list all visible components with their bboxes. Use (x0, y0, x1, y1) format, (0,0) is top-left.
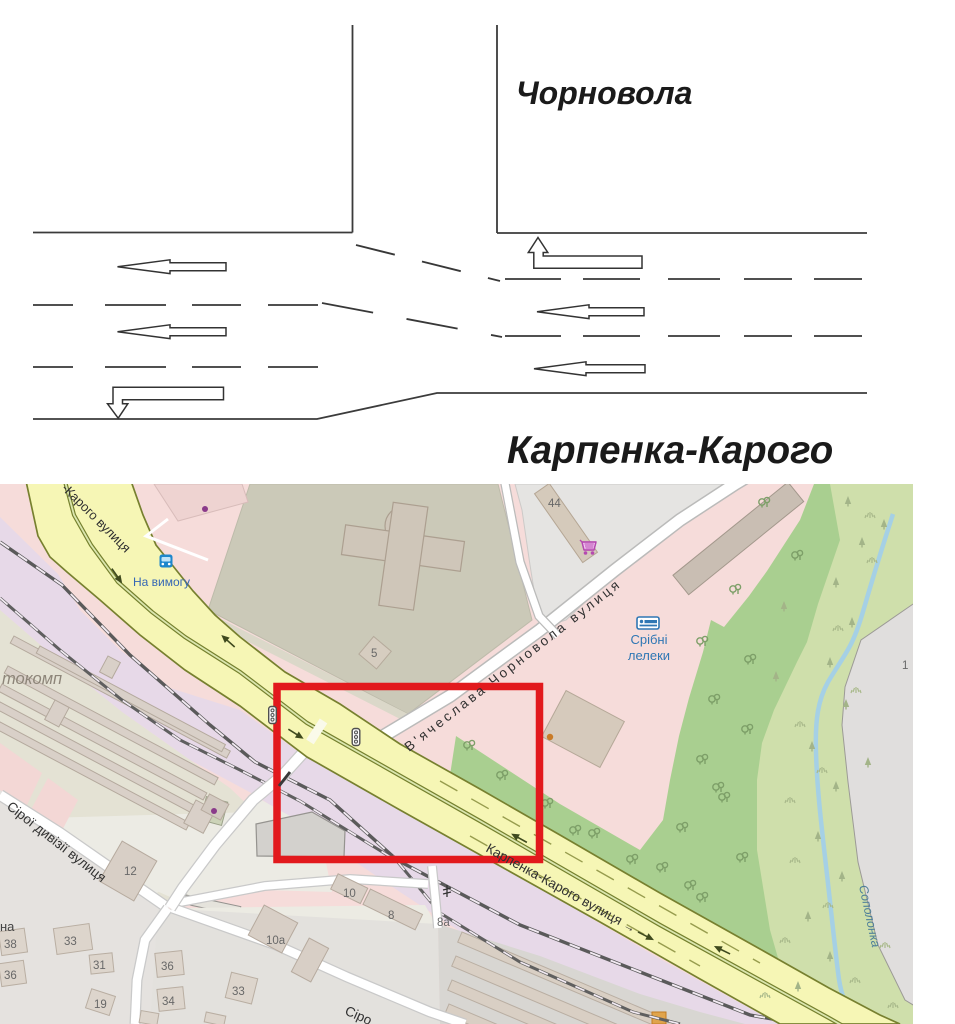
svg-text:10: 10 (343, 888, 356, 900)
svg-text:36: 36 (4, 970, 17, 982)
svg-text:19: 19 (94, 999, 107, 1011)
svg-text:31: 31 (93, 960, 106, 972)
svg-text:12: 12 (124, 866, 137, 878)
svg-text:36: 36 (161, 961, 174, 973)
svg-text:44: 44 (548, 498, 561, 510)
svg-text:Чорновола: Чорновола (516, 75, 692, 111)
svg-text:Срібні: Срібні (630, 632, 667, 647)
svg-text:Карпенка-Карого: Карпенка-Карого (507, 429, 833, 472)
svg-text:5: 5 (371, 648, 377, 660)
svg-text:33: 33 (64, 936, 77, 948)
svg-text:33: 33 (232, 986, 245, 998)
svg-text:На вимогу: На вимогу (133, 575, 190, 589)
svg-text:34: 34 (162, 996, 175, 1008)
svg-text:8: 8 (388, 910, 394, 922)
svg-text:токомп: токомп (2, 670, 62, 688)
svg-text:лелеки: лелеки (628, 648, 670, 663)
svg-text:на: на (0, 919, 15, 934)
svg-text:8a: 8a (437, 917, 450, 929)
svg-text:10a: 10a (266, 935, 286, 947)
svg-text:38: 38 (4, 939, 17, 951)
svg-text:1: 1 (902, 660, 908, 672)
